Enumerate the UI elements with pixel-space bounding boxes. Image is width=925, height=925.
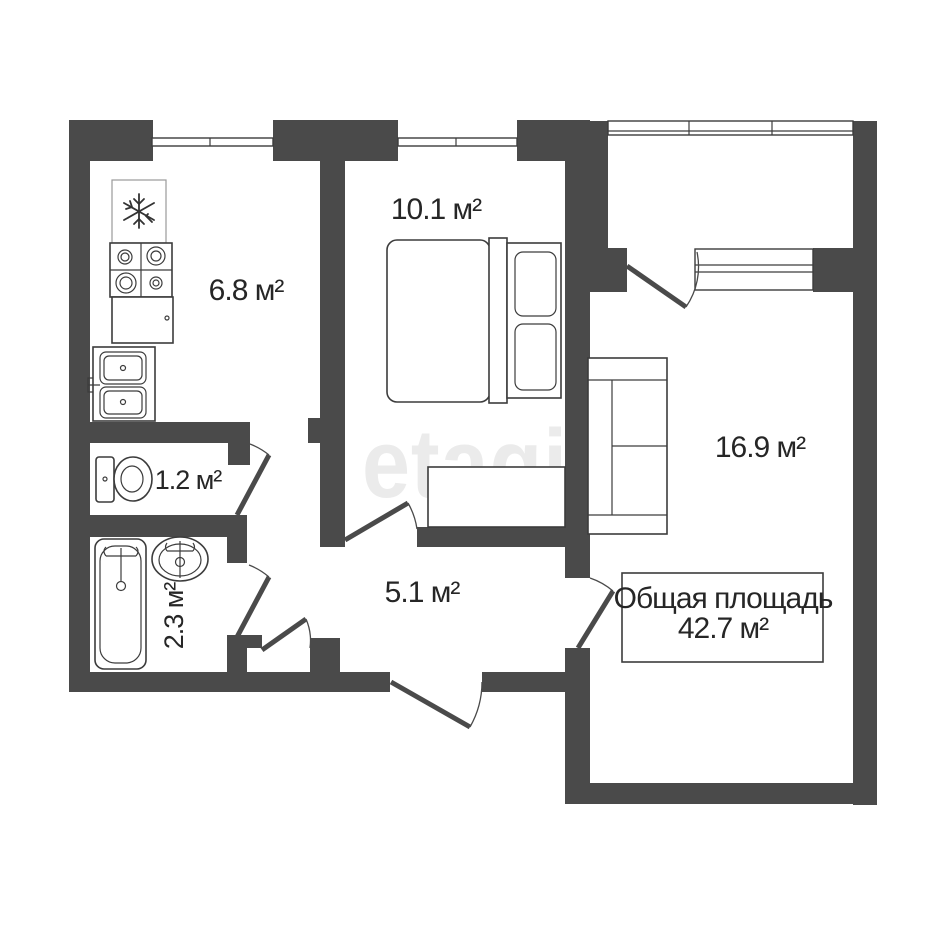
kitchen-counter	[112, 297, 173, 343]
sofa	[588, 358, 667, 534]
living-room-area-label: 16.9 м²	[715, 431, 806, 464]
double-bed	[387, 238, 561, 403]
total-area-value: 42.7 м²	[678, 612, 769, 645]
hallway-area-label: 5.1 м²	[385, 576, 461, 609]
bedroom-area-label: 10.1 м²	[391, 193, 482, 226]
wash-basin	[152, 537, 208, 581]
balcony-block-window	[695, 249, 813, 290]
bathtub	[95, 539, 146, 669]
floor-plan-svg: etagi	[0, 0, 925, 925]
total-area-box: Общая площадь 42.7 м²	[614, 573, 833, 662]
balcony-glazing	[608, 121, 853, 135]
kitchen-double-sink	[88, 347, 155, 421]
bedroom-window	[398, 138, 517, 146]
stove	[110, 243, 172, 297]
kitchen-area-label: 6.8 м²	[209, 274, 285, 307]
floor-plan-page: etagi	[0, 0, 925, 925]
total-area-title: Общая площадь	[614, 582, 833, 615]
toilet-area-label: 1.2 м²	[155, 465, 223, 495]
toilet	[96, 457, 152, 502]
kitchen-window	[152, 138, 273, 146]
fridge	[112, 180, 166, 243]
wardrobe	[428, 467, 565, 527]
bathroom-area-label: 2.3 м²	[159, 582, 189, 650]
